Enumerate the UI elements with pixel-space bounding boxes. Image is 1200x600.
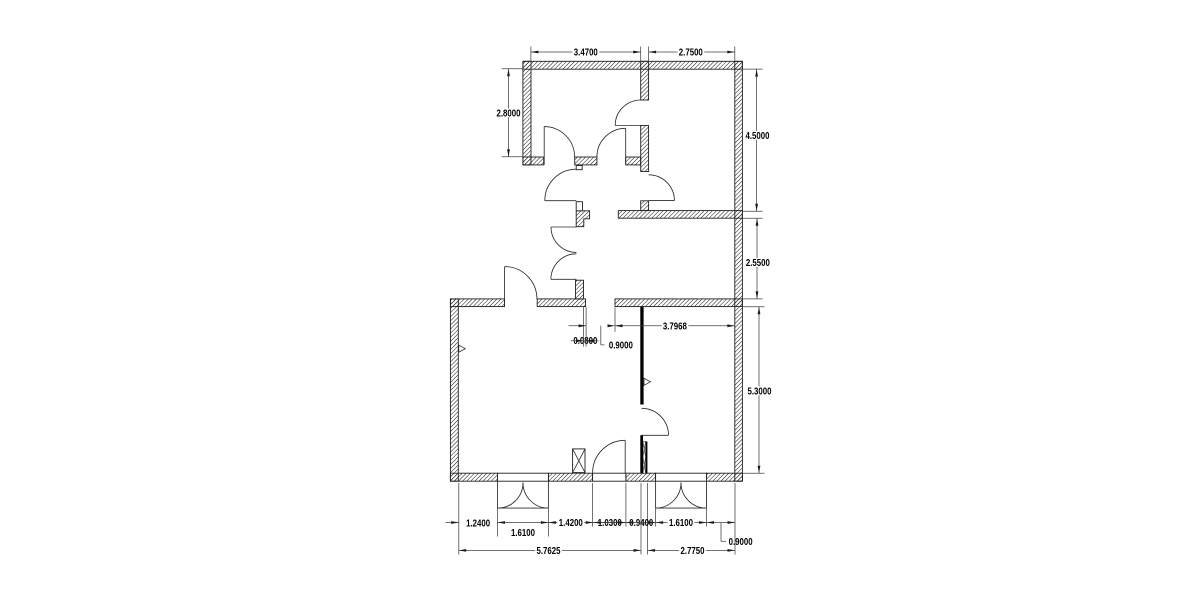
svg-text:1.4200: 1.4200 xyxy=(559,518,583,529)
svg-text:5.3000: 5.3000 xyxy=(748,386,772,397)
svg-text:2.7750: 2.7750 xyxy=(681,546,705,557)
svg-text:1.2400: 1.2400 xyxy=(466,518,490,529)
svg-text:2.5500: 2.5500 xyxy=(746,258,770,269)
svg-text:1.6100: 1.6100 xyxy=(511,528,535,539)
svg-text:2.7500: 2.7500 xyxy=(679,48,703,59)
svg-text:3.4700: 3.4700 xyxy=(574,48,598,59)
svg-text:0.9000: 0.9000 xyxy=(609,340,633,351)
svg-text:4.5000: 4.5000 xyxy=(746,131,770,142)
svg-text:1.6100: 1.6100 xyxy=(669,518,693,529)
svg-text:2.8000: 2.8000 xyxy=(497,108,521,119)
svg-text:3.7968: 3.7968 xyxy=(663,321,687,332)
svg-text:0.9000: 0.9000 xyxy=(729,537,753,548)
svg-text:5.7625: 5.7625 xyxy=(537,546,561,557)
